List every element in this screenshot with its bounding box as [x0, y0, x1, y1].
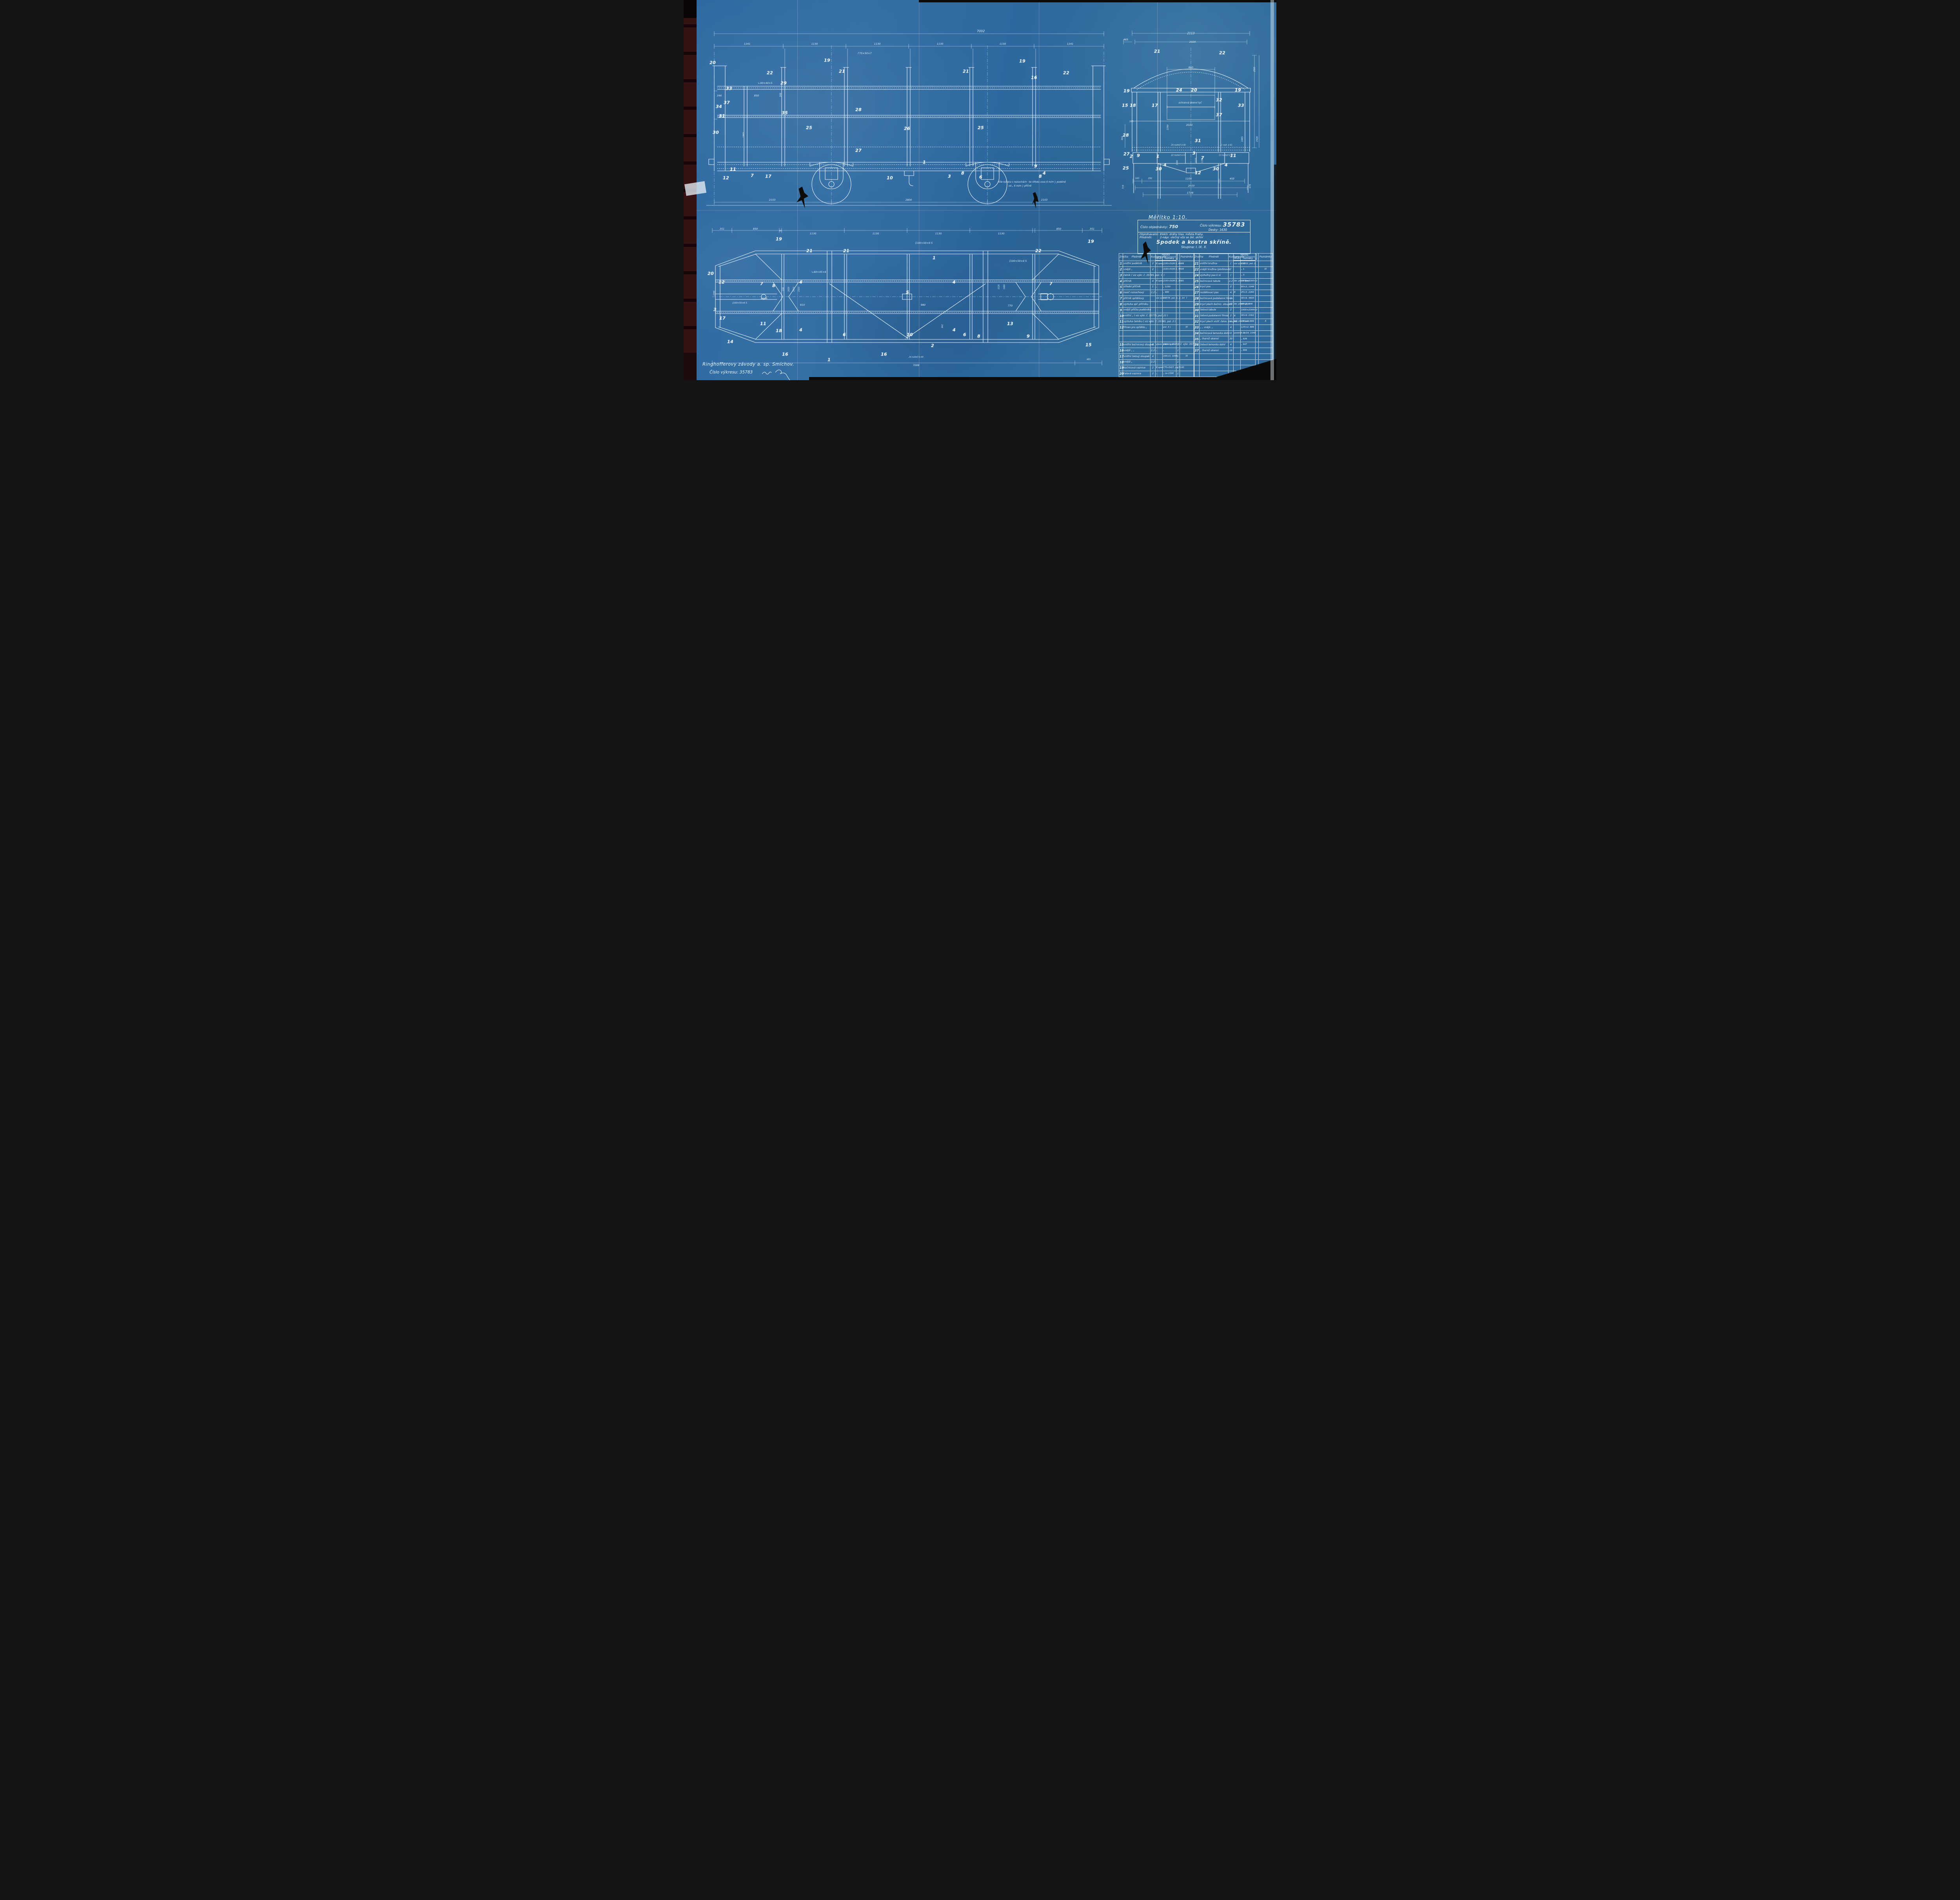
part-callout-30: 30 [1156, 167, 1162, 171]
cell-left-druh: „ [1156, 290, 1163, 296]
drawing-label: 1520 [998, 285, 1000, 290]
part-callout-16: 16 [782, 352, 788, 357]
part-callout-37: 37 [724, 101, 730, 105]
cell-left-pozn [1180, 336, 1194, 342]
cell-left-kovar: 1 [1176, 371, 1180, 377]
parts-table: Značka Předmět Kusů pro vůz Hmota Kovář … [1119, 253, 1273, 377]
parts-table-row: 3čelník ( viz výkr. č. 35785, pol. 1. )2… [1119, 273, 1273, 279]
cell-left-druh [1156, 336, 1163, 342]
cell-left-druh: B spec. [1156, 261, 1163, 267]
cell-left-kusu: 1 [1151, 284, 1156, 290]
cell-left-rozmery: 35778, pol. 1, 2, 14 [1163, 296, 1176, 302]
part-callout-1: 1 [828, 358, 831, 362]
cell-left-pozn [1180, 330, 1194, 336]
cell-right-druh: · [1234, 273, 1241, 279]
cell-left-rozmery [1163, 301, 1176, 307]
drawing-label: 1484 [1004, 285, 1006, 290]
cell-right-no: 29 [1194, 301, 1200, 307]
parts-table-row: 8výztuha spř. příčníku29krycí plech bočn… [1119, 301, 1273, 307]
part-callout-8: 8 [772, 284, 775, 288]
cell-left-no: 17 [1119, 354, 1123, 359]
drawing-label: 290 [1253, 67, 1256, 72]
part-callout-20: 20 [708, 272, 714, 276]
drawing-label: 1885 [1241, 136, 1244, 142]
cell-right-kovar [1256, 296, 1259, 302]
cell-left-rozmery: [100×50/6·5, 4594 [1163, 267, 1176, 273]
cell-right-predmet: čelová tabule [1200, 307, 1229, 313]
cell-left-druh [1156, 307, 1163, 313]
drawing-label: 2103 [799, 287, 800, 292]
parts-table-row: 2vnější „2·[100×50/6·5, 459422vnější kru… [1119, 267, 1273, 273]
part-callout-9: 9 [1027, 334, 1030, 339]
cell-left-predmet: střední příčník [1123, 284, 1151, 290]
cell-left-rozmery [1163, 330, 1176, 336]
drawing-label: 395 [1129, 121, 1134, 123]
cell-left-kovar [1176, 330, 1180, 336]
part-callout-12: 12 [723, 176, 729, 180]
cell-left-predmet: čelník ( viz výkr. č. 35785, pol. 1. ) [1123, 273, 1151, 279]
drawing-label: od „ 6 m/m } příčně [1009, 185, 1031, 188]
part-callout-7: 7 [1201, 156, 1204, 160]
part-callout-4: 4 [953, 328, 956, 332]
cell-right-no: 37 [1194, 348, 1200, 354]
cell-right-kusu [1229, 359, 1234, 365]
cell-right-kusu: 2 [1229, 307, 1234, 313]
cell-left-predmet: vnitřní čelový sloupek [1123, 354, 1151, 359]
drawing-label: Γ75×50×7 [858, 52, 871, 55]
drawing-label: 2020 [1189, 41, 1196, 44]
part-callout-3: 3 [713, 308, 717, 312]
part-callout-21: 21 [839, 69, 845, 74]
drawing-label: 2099 [714, 291, 716, 296]
drawing-label: 1130 [1000, 43, 1006, 45]
cell-left-druh: · [1156, 354, 1163, 359]
part-callout-20: 20 [1191, 88, 1197, 92]
cell-right-predmet: krycí plech vnitř. čelov. sloupků [1200, 319, 1229, 325]
cell-left-druh: B spec. [1156, 365, 1163, 371]
cell-right-druh: polokul. žel. [1234, 330, 1241, 336]
cell-left-no [1119, 336, 1123, 342]
parts-table-row: 11výztuha čelníku ( viz výkr. č. 35785, … [1119, 319, 1273, 325]
part-callout-30: 30 [713, 131, 719, 135]
part-callout-22: 22 [1219, 51, 1225, 55]
part-callout-27: 27 [855, 149, 862, 153]
part-callout-31: 31 [1195, 139, 1201, 143]
cell-left-pozn: IV [1180, 325, 1194, 330]
part-callout-4: 4 [1225, 163, 1228, 167]
part-callout-19: 19 [1123, 89, 1130, 93]
part-callout-18: 18 [1130, 103, 1136, 108]
part-callout-11: 11 [730, 167, 736, 172]
cell-left-rozmery: „ [1163, 359, 1176, 365]
drawing-label: 910 [800, 304, 805, 306]
drawing-label: 980 [921, 304, 926, 306]
cell-left-kovar [1176, 284, 1180, 290]
cell-right-no [1194, 354, 1200, 359]
drawing-label: 2020 [1186, 124, 1193, 127]
cell-left-druh: viz výkr. č. [1156, 296, 1163, 302]
cell-right-predmet: bočnicová tabule [1200, 278, 1229, 284]
part-callout-32: 32 [1216, 98, 1222, 102]
part-callout-8: 8 [961, 171, 964, 176]
part-callout-4: 4 [1163, 163, 1167, 167]
drawing-title: Spodek a kostra skříně. [1140, 239, 1249, 245]
signature-flourish [760, 367, 804, 380]
part-callout-21: 21 [843, 249, 849, 253]
part-callout-33: 33 [726, 87, 732, 91]
cell-left-rozmery: Γ75×50/7, ca 7100 [1163, 365, 1176, 371]
drawing-label: 2103 [769, 199, 776, 201]
part-callout-28: 28 [1123, 133, 1129, 138]
cell-left-rozmery: 160×3, 2043·5 [1163, 342, 1176, 348]
part-callout-25: 25 [1123, 166, 1129, 170]
part-callout-1: 1 [923, 160, 926, 165]
cell-left-no: 19 [1119, 365, 1123, 371]
cell-right-predmet: výztužný pas k ní [1200, 273, 1229, 279]
drawing-label: 485 [1087, 359, 1091, 361]
part-callout-33: 33 [1238, 103, 1244, 108]
cell-left-druh: „ [1156, 371, 1163, 377]
part-callout-19: 19 [824, 58, 830, 63]
drawing-label: 1130 [935, 232, 942, 235]
part-callout-7: 7 [760, 282, 763, 286]
part-callout-2: 2 [1130, 154, 1133, 159]
cell-right-kovar [1256, 284, 1259, 290]
drawing-label: ∟40×40×5 [758, 82, 772, 85]
drawing-label: 850 [1056, 228, 1061, 230]
part-callout-13: 13 [1007, 322, 1013, 326]
cell-right-kovar [1256, 359, 1259, 365]
part-callout-37: 37 [1216, 113, 1222, 117]
part-callout-4: 4 [799, 328, 802, 332]
cell-left-pozn [1180, 290, 1194, 296]
cell-left-predmet: bočnicová vaznice [1123, 365, 1151, 371]
plan-view: 3518504011301130113011308503511919212122… [704, 225, 1111, 368]
part-callout-9: 9 [1034, 164, 1037, 169]
cell-left-predmet: vnitřní bočnicový sloupek [1123, 342, 1151, 348]
part-callout-2: 2 [931, 344, 934, 348]
cell-left-druh: B spec. [1156, 278, 1163, 284]
part-callout-12: 12 [719, 280, 725, 285]
cell-right-kovar [1256, 342, 1259, 348]
cell-right-kusu: 4 [1229, 325, 1234, 330]
part-callout-6: 6 [963, 333, 966, 337]
part-callout-15: 15 [1085, 343, 1092, 347]
cell-left-predmet: příčník [1123, 278, 1151, 284]
cell-right-druh [1234, 359, 1241, 365]
drawing-label: [100×50×6·5 [1009, 260, 1027, 263]
cell-left-kovar [1176, 336, 1180, 342]
cell-right-rozmery: 40×9, 2362 [1241, 313, 1256, 319]
cell-right-rozmery: „ 1. [1241, 267, 1256, 273]
cell-right-no: 27 [1194, 290, 1200, 296]
cell-right-predmet: „ (horní) okenní [1200, 348, 1229, 354]
subject-value: 2-nápr. vlečný vůz se žel. skříní [1160, 236, 1203, 239]
cell-left-predmet: příčník spřáhlový [1123, 296, 1151, 302]
part-callout-21: 21 [963, 69, 969, 74]
cell-right-druh: · [1234, 284, 1241, 290]
part-callout-4: 4 [953, 280, 956, 285]
drawing-label: 1241 [744, 43, 751, 45]
drawing-label: vůle ložiska v rozsochách · ke středu vo… [998, 181, 1066, 184]
cell-left-pozn: č. výkr. 35710 [1180, 342, 1194, 348]
fold-crease-horizontal [697, 210, 1276, 211]
blueprint-sheet: 7002124111301130113011301241202221212219… [684, 0, 1276, 380]
cell-left-predmet: výztuha spř. příčníku [1123, 301, 1151, 307]
cell-right-no: 33 [1194, 325, 1200, 330]
drawing-number: Číslo výkresu: 35783 Desky: 1630 [1200, 220, 1250, 232]
cell-left-pozn [1180, 301, 1194, 307]
drawing-label: 351 [720, 228, 724, 230]
drawing-label: 860 [1189, 66, 1193, 69]
customer-label: Objednavatel: [1140, 233, 1160, 236]
cell-left-rozmery: pol. 3 ) [1163, 325, 1176, 330]
cell-right-kusu: 2 [1229, 313, 1234, 319]
parts-table-row: 15vnitřní bočnicový sloupek6plávk. plech… [1119, 342, 1273, 348]
part-callout-17: 17 [765, 174, 771, 179]
cell-left-no: 10 [1119, 313, 1123, 319]
cell-right-predmet: čelová lemovka dolní [1200, 342, 1229, 348]
cell-left-predmet: třmen pro spřáhlo „ [1123, 325, 1151, 330]
cell-right-kovar [1256, 325, 1259, 330]
drawing-label: Číslo výkresu: [1200, 224, 1222, 227]
sheet-right-edge [1270, 0, 1274, 380]
drawing-label: 1241 [1067, 43, 1074, 45]
drawing-label: 1130 [874, 43, 881, 45]
cell-right-druh: žel. plech spec. [1234, 278, 1241, 284]
cell-right-rozmery: „ 3. [1241, 273, 1256, 279]
part-callout-11: 11 [760, 322, 766, 326]
cell-left-no: 20 [1119, 371, 1123, 377]
cell-right-kusu [1229, 354, 1234, 359]
cell-right-druh: viz výkr. č. [1234, 261, 1241, 267]
cell-left-rozmery: „ [1163, 348, 1176, 354]
cell-right-no: 32 [1194, 319, 1200, 325]
cell-right-kusu: 16 [1229, 348, 1234, 354]
drawing-label: [100×50×6·5 [732, 302, 747, 305]
cell-right-no: 25 [1194, 278, 1200, 284]
part-callout-28: 28 [855, 108, 862, 112]
parts-table-row: 4příčník4B spec.[100×50/6·5, 208125bočni… [1119, 278, 1273, 284]
customer-value: Elektr. dráhy hlav. města Prahy. [1160, 233, 1203, 236]
cell-left-predmet: vnitřní „ ( viz výkr. č. 35773, pol. 22 … [1123, 313, 1151, 319]
header-znacka: Značka [1194, 254, 1200, 261]
cell-right-kusu [1229, 365, 1234, 371]
drawing-label: 1130 [811, 43, 818, 45]
cell-right-druh: · [1234, 348, 1241, 354]
cell-left-druh: · [1156, 267, 1163, 273]
part-callout-25: 25 [806, 126, 812, 130]
cell-right-predmet: bočnicová lemovka dolní [1200, 330, 1229, 336]
parts-table-row: 9vnější příčka podélníku30čelová tabule2… [1119, 307, 1273, 313]
title-block-top-row: Číslo objednávky: 750 Číslo výkresu: 357… [1138, 220, 1250, 232]
drawing-label: 40 [779, 230, 782, 232]
cell-left-kusu: 2 [1151, 267, 1156, 273]
header-kovar: Kovář [1176, 254, 1180, 261]
cell-left-kusu: 2,2 [1151, 348, 1156, 354]
drawing-label: [100×50×6·5 [915, 242, 933, 245]
order-number: Číslo objednávky: 750 [1138, 220, 1200, 232]
drawing-label: 6988 [761, 297, 768, 300]
parts-table-row: 18vnější „2,2·„1 [1119, 359, 1273, 365]
part-callout-11: 11 [1230, 154, 1236, 158]
parts-table-row: 34bočnicová lemovka dolní4polokul. žel.∩… [1119, 330, 1273, 336]
cell-right-rozmery: 35802, pol. 2. [1241, 261, 1256, 267]
header-znacka: Značka [1119, 254, 1123, 261]
cell-right-no: 21 [1194, 261, 1200, 267]
parts-table-row: 1vnitřní podélník2B spec.[100×50/6·5, 69… [1119, 261, 1273, 267]
part-callout-17: 17 [1152, 103, 1158, 108]
cell-right-kusu: ( [1229, 261, 1234, 267]
desky-value: 1630 [1220, 228, 1227, 232]
part-callout-5: 5 [906, 290, 909, 295]
part-callout-7: 7 [751, 174, 754, 178]
cell-left-druh [1156, 301, 1163, 307]
cell-left-kusu [1151, 307, 1156, 313]
cell-left-rozmery [1163, 336, 1176, 342]
title-block: Číslo objednávky: 750 Číslo výkresu: 357… [1138, 220, 1250, 254]
drawing-label: 678 [1249, 184, 1252, 189]
cell-right-rozmery: ∩ č. 18, 1048 [1241, 330, 1256, 336]
part-callout-19: 19 [1235, 88, 1241, 92]
cell-left-predmet [1123, 330, 1151, 336]
part-callout-4: 4 [799, 280, 802, 285]
drawing-label: 2010 [793, 287, 795, 292]
cell-left-no: 4 [1119, 278, 1123, 284]
cell-left-rozmery: [100×50/6·5, 6988 [1163, 261, 1176, 267]
cell-left-predmet: vnitřní podélník [1123, 261, 1151, 267]
cell-right-no: 34 [1194, 330, 1200, 336]
drawing-label: 719 [1122, 185, 1125, 189]
cell-right-rozmery: 25×3, 2260 [1241, 290, 1256, 296]
cell-right-druh: · [1234, 325, 1241, 330]
cell-right-kovar [1256, 330, 1259, 336]
header-rozmery: rozměry [1163, 257, 1176, 261]
cell-left-pozn [1180, 313, 1194, 319]
cell-right-rozmery: 100×2, 886 [1241, 319, 1256, 325]
drawing-label: 1885 [743, 132, 745, 138]
order-label: Číslo objednávky: [1140, 225, 1168, 229]
cell-left-kusu: 2,2 [1151, 359, 1156, 365]
cell-right-kovar [1256, 354, 1259, 359]
cell-left-kusu [1151, 336, 1156, 342]
cell-right-druh: · [1234, 342, 1241, 348]
blueprint-scan: 7002124111301130113011301241202221212219… [684, 0, 1276, 380]
cell-left-druh [1156, 330, 1163, 336]
cell-right-kusu: 10 [1229, 301, 1234, 307]
cell-left-rozmery: [100×50/6·5, 2081 [1163, 278, 1176, 284]
cell-left-kusu [1151, 296, 1156, 302]
part-callout-7: 7 [1049, 282, 1053, 286]
part-callout-21: 21 [806, 249, 813, 253]
drawing-label: 1130 [937, 43, 944, 45]
cell-right-rozmery: 80×2, 946 [1241, 301, 1256, 307]
header-rozmery: rozměry [1241, 257, 1256, 261]
part-callout-6: 6 [979, 175, 982, 179]
cell-right-no: 30 [1194, 307, 1200, 313]
part-callout-19: 19 [1019, 59, 1025, 63]
part-callout-16: 16 [1031, 76, 1037, 80]
cell-right-no: 26 [1194, 284, 1200, 290]
drawing-label: 2113 [1187, 32, 1194, 35]
cell-right-kusu: ( [1229, 273, 1234, 279]
cell-left-no [1119, 330, 1123, 336]
part-callout-6: 6 [843, 333, 846, 337]
part-callout-22: 22 [767, 71, 773, 75]
cell-left-pozn [1180, 348, 1194, 354]
cell-right-kusu: 2,2 [1229, 278, 1234, 284]
cell-left-kovar: 1 [1176, 348, 1180, 354]
cell-right-predmet [1200, 365, 1229, 371]
cell-left-no: 9 [1119, 307, 1123, 313]
cell-right-predmet: vnitřní kružina [1200, 261, 1229, 267]
part-callout-25: 25 [978, 126, 984, 130]
cell-left-no: 18 [1119, 359, 1123, 365]
cell-right-predmet: krycí plech bočnic. sloupků [1200, 301, 1229, 307]
cell-left-druh: · [1156, 325, 1163, 330]
part-callout-29: 29 [780, 81, 787, 85]
header-kusu: Kusů pro vůz [1229, 254, 1234, 261]
cell-left-rozmery: „ 1100 [1163, 284, 1176, 290]
cell-left-kusu [1151, 330, 1156, 336]
cell-right-predmet [1200, 354, 1229, 359]
cell-left-druh: plávk. plech spec. [1156, 342, 1163, 348]
cell-left-no: 1 [1119, 261, 1123, 267]
drawing-label: 351 [1090, 228, 1094, 230]
drawing-label: 2010 [1188, 185, 1195, 187]
part-callout-12: 12 [1195, 171, 1201, 175]
drawing-label: 20 roztečí à 40 [1171, 145, 1185, 147]
cell-left-pozn [1180, 371, 1194, 377]
cell-right-predmet: bočnicová podokenní římsa [1200, 296, 1229, 302]
header-druh: Druh [1156, 257, 1163, 261]
cell-right-kovar [1256, 313, 1259, 319]
part-callout-1: 1 [1156, 154, 1160, 159]
cell-right-druh [1234, 354, 1241, 359]
cell-right-kovar [1256, 301, 1259, 307]
cell-right-rozmery [1241, 354, 1256, 359]
part-callout-17: 17 [719, 316, 726, 321]
cell-right-no [1194, 371, 1200, 377]
part-callout-10: 10 [907, 333, 913, 337]
drawing-label: 1130 [810, 232, 817, 235]
cell-right-predmet: vnější kružina (plošinová) [1200, 267, 1229, 273]
cell-right-druh: B [1234, 290, 1241, 296]
cell-right-kusu: 4 [1229, 290, 1234, 296]
cell-left-kusu: 2 [1151, 365, 1156, 371]
drawing-label: 1728 [1187, 192, 1194, 194]
subject-label: Předmět: [1140, 236, 1160, 239]
tape-patch [684, 181, 706, 196]
cell-right-rozmery: 1078×2285×2 [1241, 278, 1256, 284]
cell-right-rozmery: 125×2, 886 [1241, 325, 1256, 330]
footer-drawing-number: Číslo výkresu: 35783 [710, 370, 753, 375]
part-callout-22: 22 [1063, 71, 1069, 75]
part-callout-20: 20 [710, 61, 716, 65]
cell-left-druh: „ [1156, 284, 1163, 290]
part-callout-4: 4 [1043, 171, 1046, 176]
drawing-label: ∟60×45×6 [811, 271, 826, 274]
cell-right-predmet: „ (horní) okenní [1200, 336, 1229, 342]
cell-left-no: 12 [1119, 325, 1123, 330]
drawing-label: 2928 [1256, 136, 1259, 142]
drawing-label: 11 rozt. à 41 [1220, 145, 1232, 147]
cell-right-druh: B [1234, 313, 1241, 319]
drawing-label: 850 [754, 94, 759, 97]
cell-left-no: 15 [1119, 342, 1123, 348]
parts-table-row: 5střední příčník1„„ 110026krycí pas2·80×… [1119, 284, 1273, 290]
order-value: 750 [1169, 224, 1178, 229]
